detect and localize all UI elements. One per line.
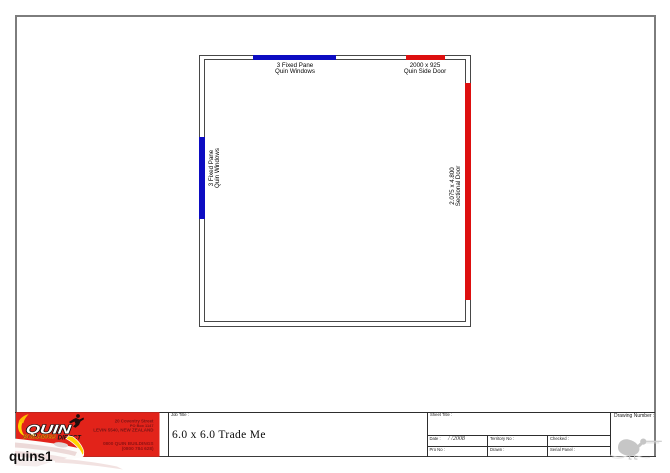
svg-text:BUILDINGS: BUILDINGS [23, 435, 56, 441]
svg-text:(0800 784 628): (0800 784 628) [122, 446, 154, 451]
svg-text:LEVIN 5540, NEW ZEALAND: LEVIN 5540, NEW ZEALAND [93, 428, 154, 433]
